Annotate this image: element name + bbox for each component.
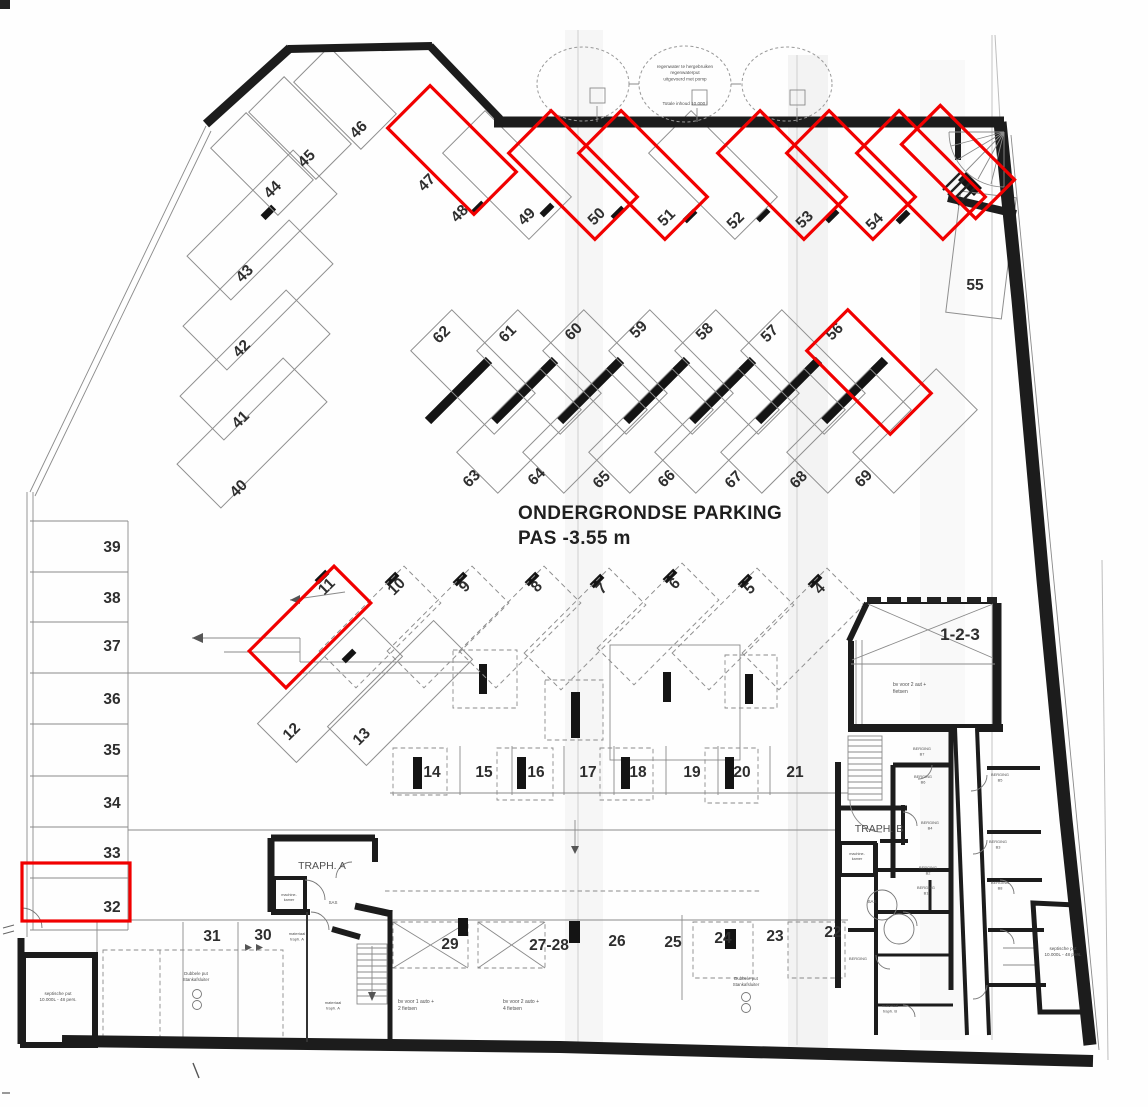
annotation-text: materiaaltraph. B (882, 1003, 899, 1013)
parking-spot-10 (319, 566, 441, 688)
parking-spot-label-31: 31 (203, 928, 221, 945)
parking-spot-label-29: 29 (441, 936, 459, 953)
parking-spot-label-12: 12 (280, 720, 304, 744)
annotation-text: Dubbele putStankafsluiter (733, 976, 760, 987)
annotation-text: SAS (868, 899, 877, 904)
annotation-text: BERGING (849, 956, 867, 961)
plan-title-line1: ONDERGRONDSE PARKING (518, 503, 782, 524)
parking-spot-label-64: 64 (525, 464, 549, 488)
parking-spot-label-9: 9 (456, 577, 474, 595)
parking-spot-label-59: 59 (627, 317, 651, 341)
parking-spot-label-38: 38 (103, 590, 121, 607)
parking-spot-13 (328, 621, 473, 766)
parking-spot-42 (183, 220, 333, 370)
parking-spot-label-39: 39 (103, 539, 121, 556)
annotation-text: septische put10.000L - 48 pers. (39, 991, 76, 1002)
parking-spot-46 (294, 47, 397, 150)
parking-spot-label-14: 14 (423, 764, 441, 781)
parking-spot-label-13: 13 (350, 724, 374, 748)
annotation-text: SAS (329, 900, 338, 905)
parking-floorplan-page: ONDERGRONDSE PARKING PAS -3.55 m regenwa… (0, 0, 1148, 1107)
parking-spot-label-44: 44 (261, 177, 285, 201)
parking-spot-44 (211, 113, 314, 216)
parking-spot-12 (258, 618, 403, 763)
parking-spot-label-19: 19 (683, 764, 701, 781)
annotation-text: machine-kamer (849, 852, 865, 861)
parking-spot-label-17: 17 (579, 764, 596, 781)
parking-spot-label-25: 25 (664, 934, 682, 951)
parking-spot-label-34: 34 (103, 795, 121, 812)
parking-spot-41 (180, 290, 330, 440)
fold-lines (578, 30, 1108, 1060)
parking-spot-label-51: 51 (655, 205, 679, 229)
parking-spot-label-61: 61 (496, 321, 520, 345)
parking-spot-label-35: 35 (103, 742, 121, 759)
parking-spot-label-33: 33 (103, 845, 121, 862)
parking-spot-label-66: 66 (655, 466, 679, 490)
parking-spot-label-45: 45 (295, 146, 319, 170)
parking-spot-label-26: 26 (608, 933, 626, 950)
annotation-text: septische put10.000L - 48 pers. (1044, 946, 1081, 957)
parking-spot-label-42: 42 (230, 337, 254, 361)
annotation-text: bv voor 1 auto +2 fietsen (398, 999, 434, 1012)
parking-spot-label-23: 23 (766, 928, 784, 945)
annotation-text: materiaaltraph. A (289, 931, 306, 941)
parking-spot-label-1-2-3: 1-2-3 (940, 625, 980, 644)
parking-spot-label-22: 22 (824, 924, 841, 941)
parking-spot-label-57: 57 (758, 322, 782, 346)
parking-floorplan: ONDERGRONDSE PARKING PAS -3.55 m regenwa… (0, 0, 1148, 1107)
parking-spot-label-32: 32 (103, 899, 120, 916)
parking-spot-label-40: 40 (227, 477, 251, 501)
parking-spot-label-69: 69 (852, 466, 876, 490)
annotation-text: TRAPH. B (855, 823, 903, 835)
parking-spot-label-5: 5 (741, 579, 759, 597)
parking-spot-6 (597, 563, 719, 685)
annotation-text: materiaaltraph. A (325, 1000, 342, 1010)
parking-spot-label-24: 24 (714, 930, 732, 947)
annotation-text: bv voor 2 auto +4 fietsen (503, 999, 539, 1012)
parking-spot-label-43: 43 (233, 261, 257, 285)
parking-spot-label-6: 6 (666, 574, 684, 592)
annotation-text: BERGINGB8 (991, 880, 1009, 890)
parking-spot-label-63: 63 (460, 466, 484, 490)
parking-spot-label-16: 16 (527, 764, 545, 781)
parking-spot-label-67: 67 (722, 468, 746, 492)
parking-spot-label-48: 48 (448, 201, 472, 225)
parking-spot-label-49: 49 (515, 204, 539, 228)
plan-title: ONDERGRONDSE PARKING PAS -3.55 m (518, 503, 782, 549)
parking-spot-label-62: 62 (430, 323, 454, 347)
parking-spot-11 (249, 566, 371, 688)
parking-spot-8 (459, 566, 581, 688)
annotation-text: TRAPH. A (298, 860, 346, 872)
annotation-text: BERGINGB5 (991, 772, 1009, 782)
parking-spot-43 (187, 150, 337, 300)
stairs-and-doors (22, 132, 1014, 1017)
parking-spot-label-20: 20 (733, 764, 750, 781)
annotation-text: machine-kamer (281, 893, 297, 902)
parking-spot-label-36: 36 (103, 691, 121, 708)
annotation-text: regenwater te hergebruikenregenwaterputu… (657, 64, 714, 81)
parking-spot-47 (388, 86, 517, 215)
parking-spot-label-41: 41 (229, 407, 253, 431)
parking-spot-label-18: 18 (629, 764, 647, 781)
parking-spot-label-55: 55 (966, 277, 984, 294)
parking-spot-label-15: 15 (475, 764, 493, 781)
parking-spot-label-30: 30 (254, 927, 271, 944)
annotation-text: Totale inhoud 10.000 l (663, 101, 708, 106)
parking-spot-label-58: 58 (693, 319, 717, 343)
annotation-text: Dubbele putStankafsluiter (183, 971, 210, 982)
parking-spot-label-21: 21 (786, 764, 804, 781)
plan-title-line2: PAS -3.55 m (518, 528, 631, 549)
parking-spot-40 (177, 358, 327, 508)
parking-spot-label-10: 10 (385, 575, 409, 599)
parking-spot-label-27-28: 27-28 (529, 937, 569, 954)
parking-spot-label-8: 8 (528, 577, 546, 595)
parking-spot-label-37: 37 (103, 638, 120, 655)
